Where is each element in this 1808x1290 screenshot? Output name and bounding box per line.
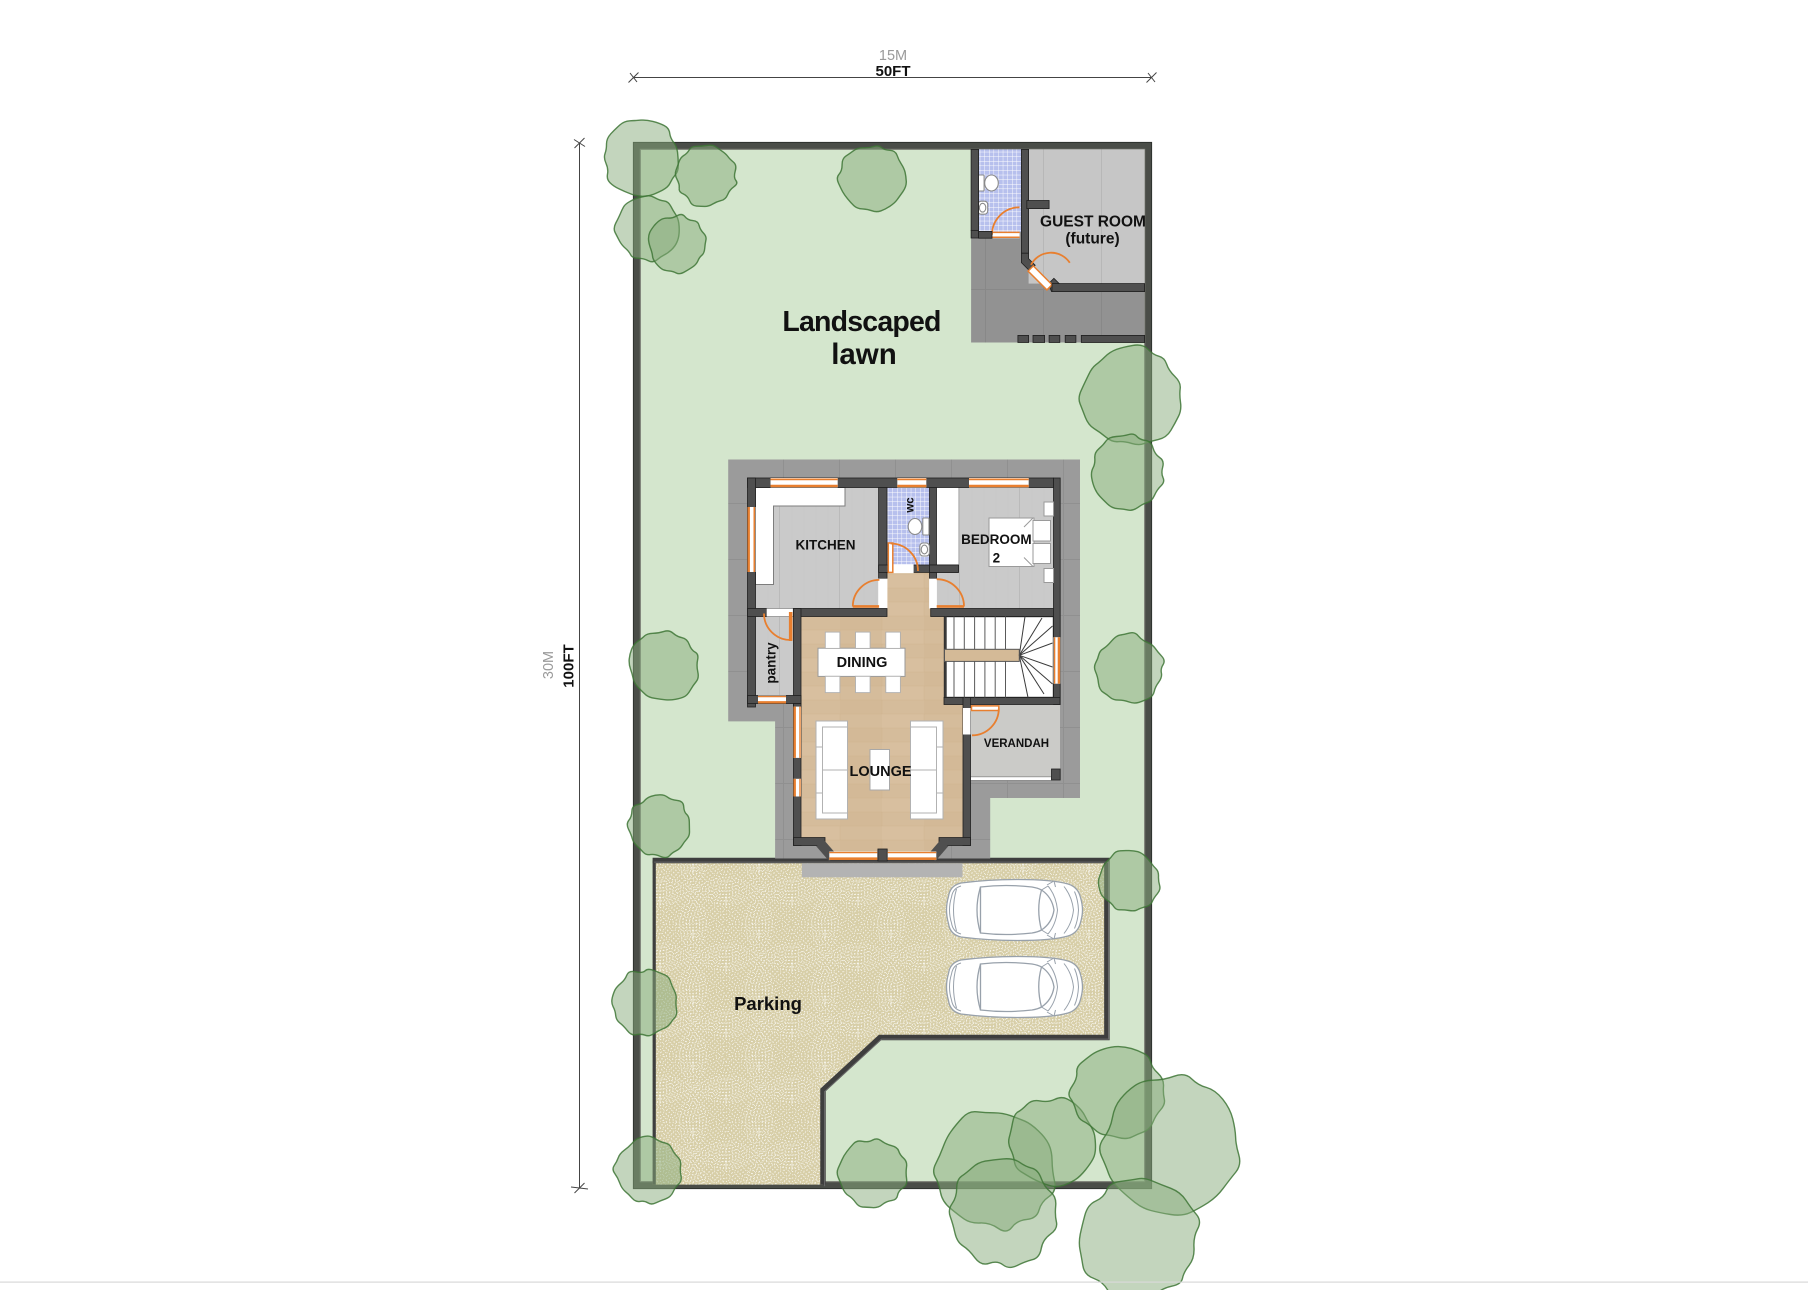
- svg-text:KITCHEN: KITCHEN: [796, 538, 856, 553]
- svg-text:30M: 30M: [541, 651, 557, 679]
- svg-text:Parking: Parking: [734, 993, 802, 1014]
- svg-text:100FT: 100FT: [561, 644, 578, 687]
- svg-text:lawn: lawn: [831, 338, 897, 371]
- svg-text:LOUNGE: LOUNGE: [849, 764, 911, 780]
- svg-text:50FT: 50FT: [875, 63, 910, 80]
- svg-text:wc: wc: [905, 497, 917, 514]
- svg-text:GUEST ROOM: GUEST ROOM: [1040, 214, 1146, 231]
- svg-text:VERANDAH: VERANDAH: [984, 738, 1049, 750]
- svg-text:BEDROOM: BEDROOM: [961, 532, 1032, 547]
- svg-text:15M: 15M: [879, 48, 907, 64]
- svg-text:DINING: DINING: [837, 655, 888, 671]
- svg-text:Landscaped: Landscaped: [782, 306, 940, 338]
- svg-text:2: 2: [993, 551, 1001, 566]
- svg-text:pantry: pantry: [764, 642, 779, 684]
- svg-text:(future): (future): [1065, 231, 1119, 248]
